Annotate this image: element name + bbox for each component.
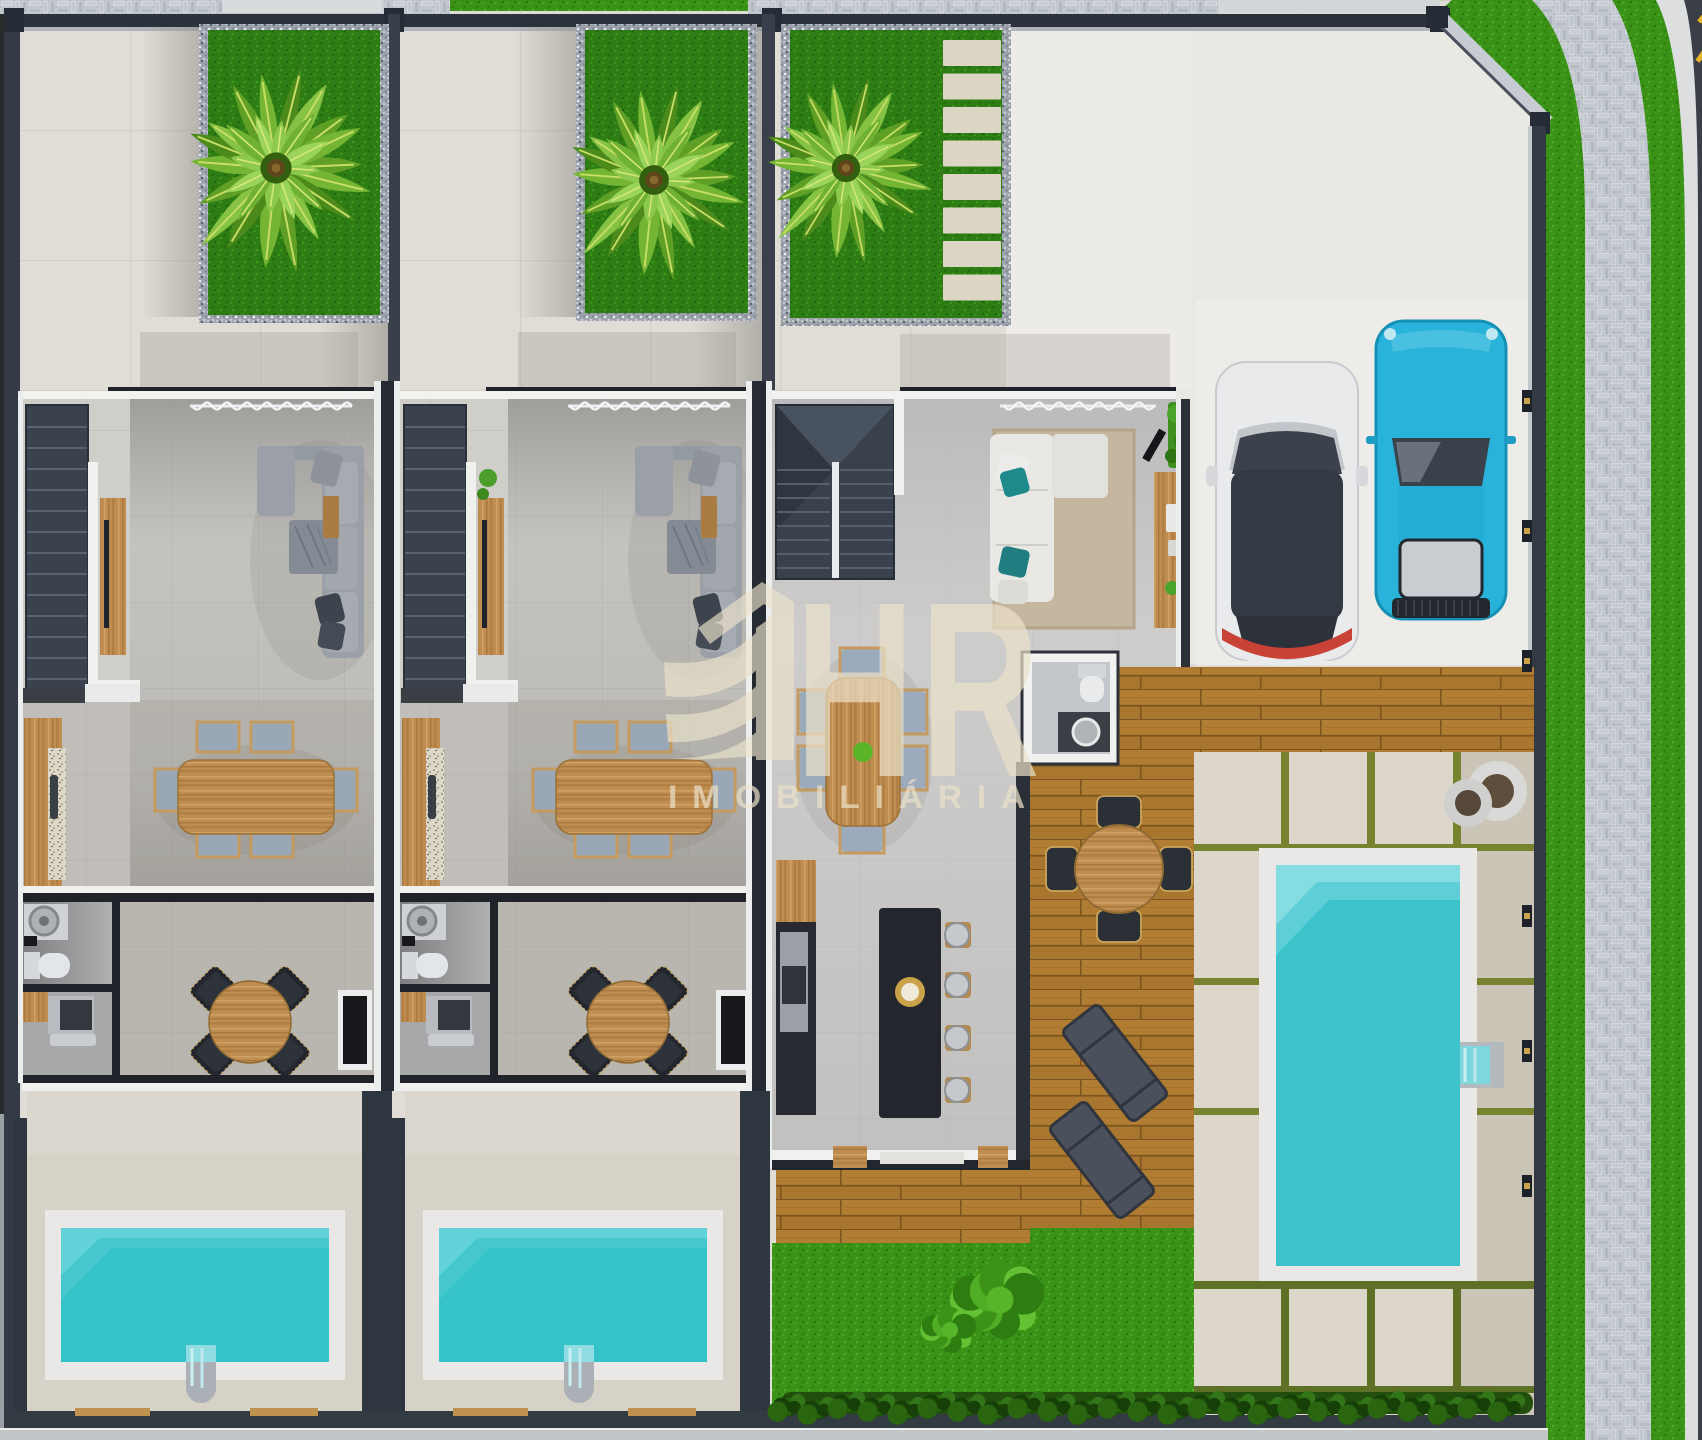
svg-text:IMOBILIÁRIA: IMOBILIÁRIA: [668, 779, 1040, 815]
